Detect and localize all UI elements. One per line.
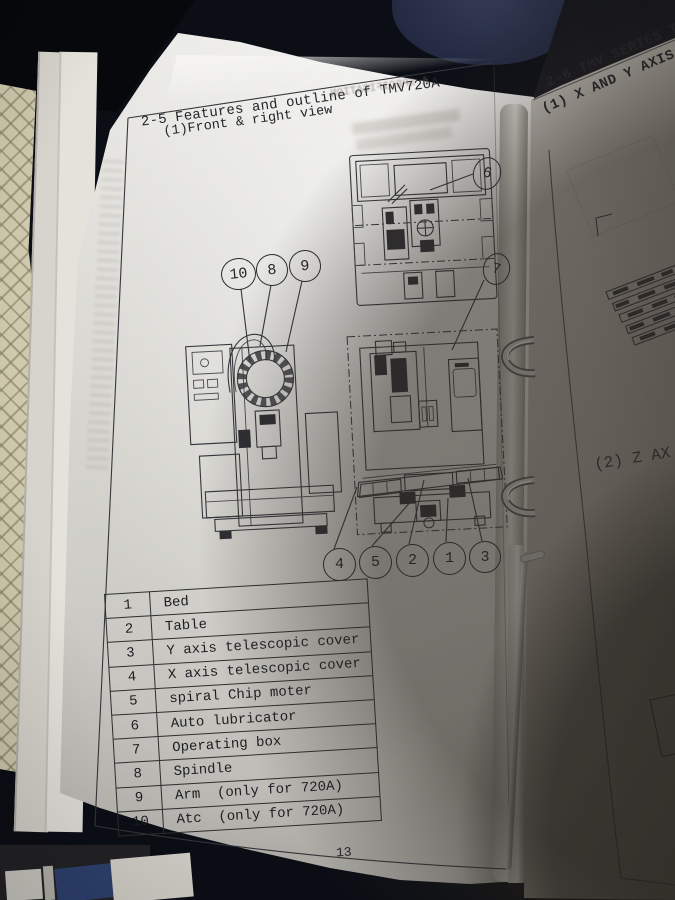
drawing-front-view [347,329,507,535]
right-page-hatch-figure [606,263,675,348]
drawing-side-view [185,330,343,540]
right-page-corner-bracket [596,214,612,236]
page-number: 13 [336,845,352,861]
parts-table: 1Bed 2Table 3Y axis telescopic cover 4X … [104,578,382,836]
binder-ring [505,340,535,373]
binder-pin [505,550,545,870]
callout-5: 5 [359,546,392,579]
manual-photo: 2-5 Features and outline of TMV720A (1)F… [0,0,675,900]
callout-1: 1 [433,542,466,575]
binder-ring [505,480,535,513]
callout-3: 3 [469,541,501,573]
callout-4: 4 [323,548,356,581]
callout-2: 2 [396,544,429,577]
right-page-small-box [650,694,675,757]
